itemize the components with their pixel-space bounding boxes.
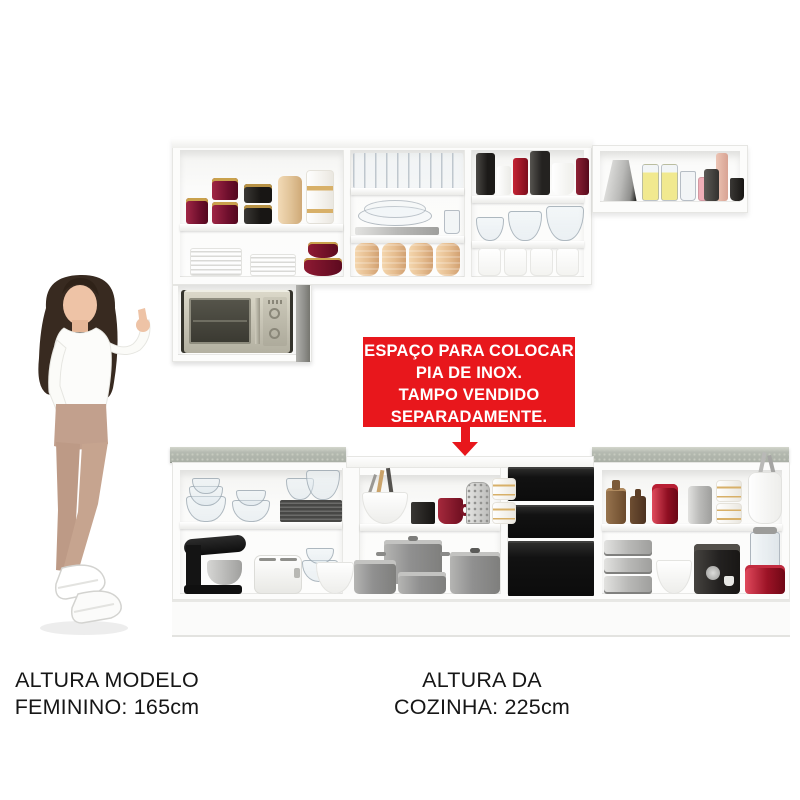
white-gold-jar-stack: [716, 503, 742, 524]
amber-bottle: [630, 496, 646, 524]
coffee-machine-cup: [724, 576, 734, 586]
shelf: [472, 196, 584, 203]
white-plate-stack: [190, 248, 242, 276]
white-plate-stack: [250, 254, 296, 276]
black-canister-stack: [244, 205, 272, 224]
shelf: [351, 188, 464, 195]
pot-handle: [376, 552, 386, 556]
tan-jar: [382, 243, 406, 276]
black-mug: [411, 502, 435, 524]
countertop-right: [592, 447, 789, 462]
yellow-filled-jar: [642, 164, 659, 201]
microwave-window-shelf: [193, 320, 247, 322]
blender-jar: [750, 532, 780, 568]
down-arrow-head: [452, 442, 478, 456]
white-gold-jar-stack: [492, 478, 516, 500]
shelf: [180, 522, 342, 529]
dark-canister: [530, 151, 550, 195]
countertop-left: [170, 447, 346, 462]
drawer-middle: [508, 505, 594, 538]
coffee-machine-group: [706, 566, 720, 580]
red-canister: [513, 158, 528, 195]
tan-jar: [436, 243, 460, 276]
kitchen-height-line1: ALTURA DA: [382, 667, 582, 694]
black-canister: [476, 153, 495, 195]
pot-lid-knob: [408, 536, 418, 541]
microwave-handle: [255, 298, 260, 344]
small-glass: [444, 210, 460, 234]
maroon-canister: [186, 198, 208, 224]
banner-line: PIA DE INOX.: [363, 362, 575, 384]
sink-space-banner: ESPAÇO PARA COLOCAR PIA DE INOX. TAMPO V…: [363, 337, 575, 427]
down-arrow: [461, 426, 470, 443]
banner-line: ESPAÇO PARA COLOCAR: [363, 340, 575, 362]
white-gold-jar-stack: [492, 502, 516, 524]
glass-plate: [364, 200, 426, 218]
metal-grater: [466, 482, 490, 524]
model-height-line2: FEMININO: 165cm: [2, 694, 212, 721]
silver-tin-stack: [604, 540, 652, 556]
stand-mixer-pillar: [186, 545, 201, 589]
white-container: [530, 248, 553, 276]
cabinet-base: [172, 600, 790, 637]
niche-side-panel: [296, 285, 310, 362]
white-container: [556, 248, 579, 276]
gray-cup: [704, 169, 719, 201]
shelf: [180, 224, 343, 231]
white-pitcher: [748, 472, 782, 524]
microwave-dial: [269, 308, 280, 319]
drawer-top: [508, 467, 594, 501]
cabinet-top-edge: [172, 138, 592, 148]
maroon-canister-stack: [212, 202, 238, 224]
black-cup: [730, 178, 744, 201]
microwave-dial: [269, 328, 280, 339]
gray-pot-small: [354, 560, 396, 594]
kitchen-height-caption: ALTURA DA COZINHA: 225cm: [382, 667, 582, 721]
cabinet-divider: [343, 150, 351, 277]
drinking-glasses-row: [353, 153, 463, 188]
pot-handle: [440, 552, 450, 556]
yellow-filled-jar: [661, 164, 678, 201]
banner-line: SEPARADAMENTE.: [363, 406, 575, 428]
microwave-buttons: [268, 300, 282, 304]
toaster-lever: [294, 568, 300, 578]
white-gold-canister: [306, 170, 334, 224]
dark-plate-stack: [280, 500, 342, 522]
amber-bottle-neck: [635, 489, 641, 498]
amber-bottle-neck: [612, 480, 620, 490]
maroon-canister-stack: [212, 178, 238, 200]
white-gold-jar-stack: [716, 480, 742, 502]
drawer-bottom: [508, 541, 594, 596]
red-bowl-set: [304, 258, 342, 276]
model-height-caption: ALTURA MODELO FEMININO: 165cm: [2, 667, 212, 721]
white-container: [478, 248, 501, 276]
banner-line: TAMPO VENDIDO: [363, 384, 575, 406]
amber-bottle: [606, 488, 626, 524]
silver-tin-stack: [604, 558, 652, 574]
product-image: ESPAÇO PARA COLOCAR PIA DE INOX. TAMPO V…: [0, 0, 800, 800]
pot-lid-knob: [470, 548, 480, 553]
blender-base: [745, 565, 785, 594]
gray-pan-low: [398, 572, 446, 594]
microwave: [181, 290, 293, 353]
white-mug: [552, 163, 574, 195]
kitchen-height-line2: COZINHA: 225cm: [382, 694, 582, 721]
shelf: [351, 236, 464, 243]
cabinet-divider: [464, 150, 472, 277]
tan-jar: [409, 243, 433, 276]
white-container: [504, 248, 527, 276]
toaster-slot: [280, 558, 297, 561]
toaster-slot: [259, 558, 276, 561]
shelf: [360, 524, 500, 531]
model-height-line1: ALTURA MODELO: [2, 667, 212, 694]
tan-jar: [355, 243, 379, 276]
tan-canister: [278, 176, 302, 224]
shelf: [472, 241, 584, 248]
red-bowl-set: [308, 242, 338, 258]
blender-lid: [753, 527, 777, 534]
maroon-canister: [576, 158, 589, 195]
black-canister-stack: [244, 184, 272, 203]
female-model-photo: [22, 272, 182, 640]
gray-pot-large: [450, 552, 500, 594]
white-canister: [497, 166, 511, 195]
glass-plates-tray: [355, 227, 439, 235]
silver-canister: [688, 486, 712, 524]
red-canister: [652, 484, 678, 524]
stand-mixer-base: [184, 585, 242, 594]
silver-tin-stack: [604, 576, 652, 594]
glass-jar: [680, 171, 696, 201]
